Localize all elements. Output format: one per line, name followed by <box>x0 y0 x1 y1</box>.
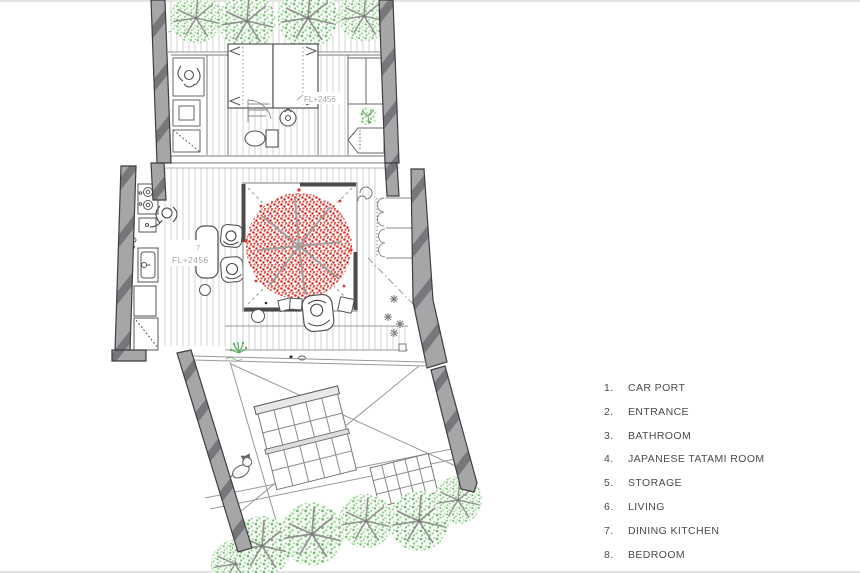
dining-person-figure <box>220 224 243 248</box>
drain-box <box>399 344 406 351</box>
legend-label: STORAGE <box>628 478 682 489</box>
legend-item-entrance: 2. ENTRANCE <box>604 407 765 418</box>
staircase-grid <box>254 386 358 490</box>
street-trees <box>211 476 482 573</box>
courtyard <box>243 183 372 311</box>
side-stool <box>252 310 265 323</box>
legend-item-dining-kitchen: 7. DINING KITCHEN <box>604 526 765 537</box>
kitchen <box>132 184 158 350</box>
floor-level-label-upper: FL+2456 <box>295 92 341 104</box>
room-legend: 1. CAR PORT 2. ENTRANCE 3. BATHROOM 4. J… <box>604 383 765 561</box>
room-label-dining-kitchen: 7 FL+2456 <box>169 240 217 266</box>
legend-label: DINING KITCHEN <box>628 526 719 537</box>
legend-item-car-port: 1. CAR PORT <box>604 383 765 394</box>
wall-stub-left <box>151 163 166 200</box>
floor-plan-page: FL+2456 <box>0 0 860 573</box>
legend-item-japanese-tatami-room: 4. JAPANESE TATAMI ROOM <box>604 454 765 465</box>
sitting-person-figure <box>301 294 335 333</box>
legend-item-bathroom: 3. BATHROOM <box>604 431 765 442</box>
green-tree-icon <box>281 503 344 566</box>
svg-text:FL+2456: FL+2456 <box>172 255 209 265</box>
floor-cushion <box>338 297 355 314</box>
wall-main-left-foot <box>112 350 146 361</box>
wall-carport-left <box>177 350 252 552</box>
wall-main-left <box>115 166 136 352</box>
svg-text:FL+2456: FL+2456 <box>304 95 336 104</box>
legend-label: LIVING <box>628 502 665 513</box>
green-tree-icon <box>339 494 393 548</box>
legend-label: BATHROOM <box>628 431 691 442</box>
wall-main-right <box>411 169 447 368</box>
upper-floor-section: FL+2456 <box>151 0 399 163</box>
potted-plant-icon <box>359 107 377 125</box>
wall-stub-right <box>385 163 399 196</box>
dining-person-figure <box>220 256 244 282</box>
toilet-icon <box>245 130 278 147</box>
wall-carport-right <box>431 366 477 492</box>
svg-text:7: 7 <box>196 243 200 252</box>
legend-label: ENTRANCE <box>628 407 689 418</box>
main-floor-section: 7 FL+2456 <box>112 163 447 368</box>
legend-item-bedroom: 8. BEDROOM <box>604 550 765 561</box>
carport-section <box>177 350 482 573</box>
legend-label: BEDROOM <box>628 550 685 561</box>
legend-label: CAR PORT <box>628 383 685 394</box>
legend-label: JAPANESE TATAMI ROOM <box>628 454 765 465</box>
legend-item-storage: 5. STORAGE <box>604 478 765 489</box>
legend-item-living: 6. LIVING <box>604 502 765 513</box>
